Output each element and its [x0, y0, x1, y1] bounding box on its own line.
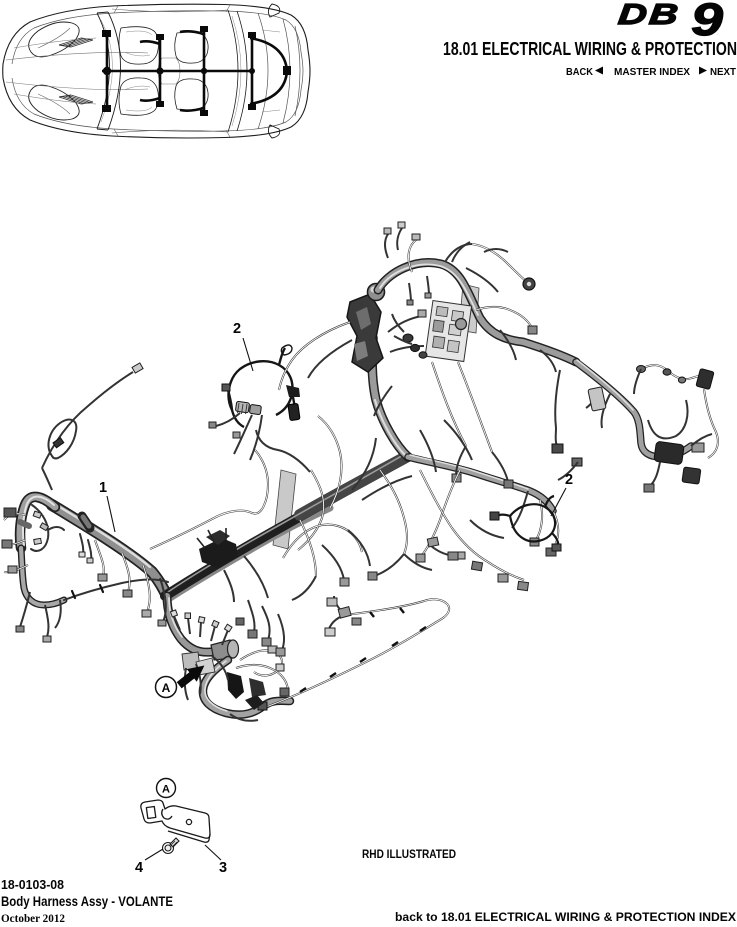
svg-text:2: 2 [565, 472, 573, 488]
svg-text:back to 18.01 ELECTRICAL WIRIN: back to 18.01 ELECTRICAL WIRING & PROTEC… [395, 912, 736, 924]
svg-text:October 2012: October 2012 [1, 911, 65, 925]
svg-text:BACK: BACK [566, 66, 593, 78]
svg-text:1: 1 [99, 480, 107, 496]
svg-text:MASTER INDEX: MASTER INDEX [614, 66, 690, 78]
svg-text:RHD ILLUSTRATED: RHD ILLUSTRATED [362, 847, 456, 861]
svg-text:18.01 ELECTRICAL WIRING & PROT: 18.01 ELECTRICAL WIRING & PROTECTION [443, 39, 737, 59]
svg-text:DB: DB [617, 0, 682, 31]
svg-text:18-0103-08: 18-0103-08 [1, 878, 64, 892]
svg-text:4: 4 [135, 860, 143, 876]
svg-text:A: A [162, 784, 170, 796]
svg-text:A: A [162, 681, 171, 695]
svg-text:3: 3 [219, 860, 227, 876]
svg-text:Body Harness Assy - VOLANTE: Body Harness Assy - VOLANTE [1, 894, 173, 909]
svg-text:NEXT: NEXT [710, 66, 737, 78]
svg-text:2: 2 [233, 321, 241, 337]
